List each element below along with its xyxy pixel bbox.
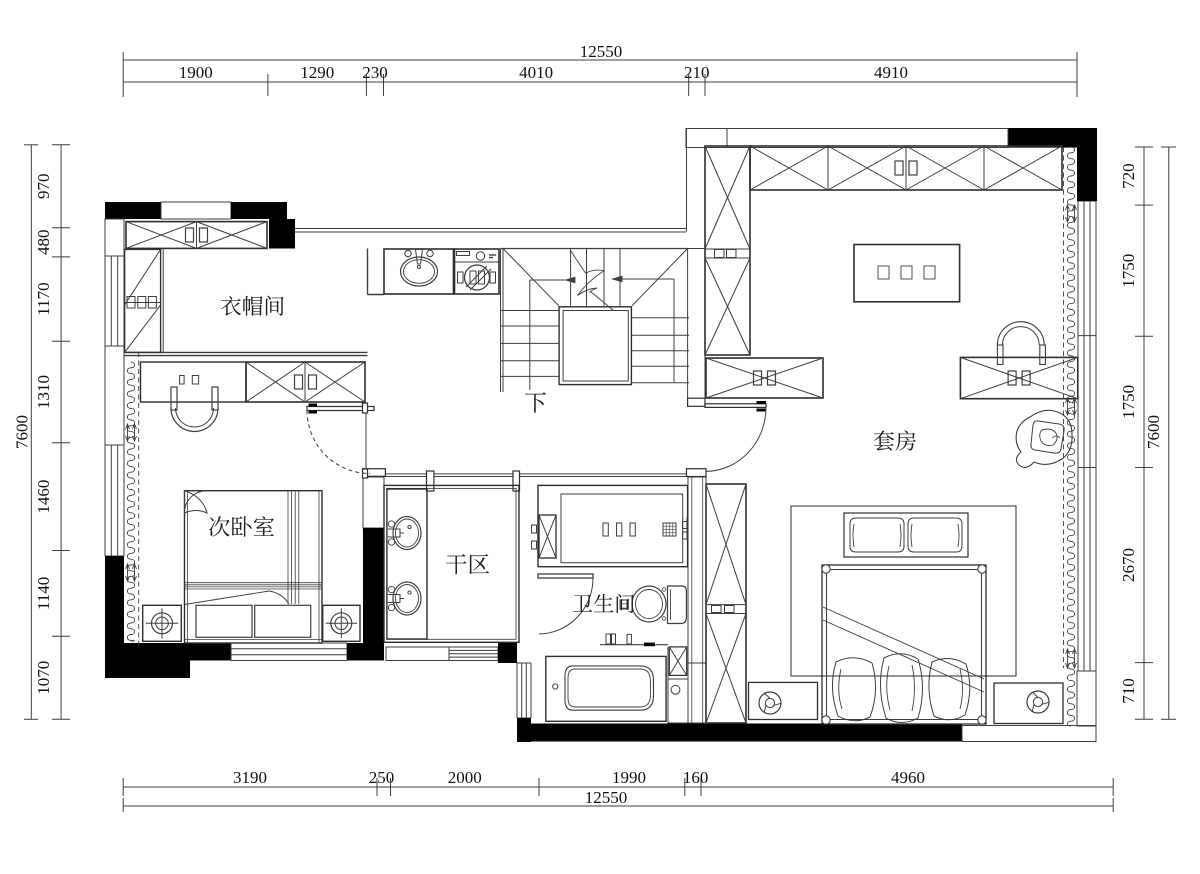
svg-text:2670: 2670	[1119, 548, 1138, 582]
svg-text:1750: 1750	[1119, 254, 1138, 288]
svg-text:4960: 4960	[891, 768, 925, 787]
svg-text:250: 250	[369, 768, 395, 787]
svg-text:2000: 2000	[448, 768, 482, 787]
svg-text:1310: 1310	[34, 375, 53, 409]
svg-text:1900: 1900	[179, 63, 213, 82]
svg-text:12550: 12550	[585, 788, 628, 807]
svg-text:710: 710	[1119, 678, 1138, 704]
svg-text:230: 230	[362, 63, 388, 82]
svg-text:1070: 1070	[34, 661, 53, 695]
svg-text:1170: 1170	[34, 282, 53, 315]
svg-text:4010: 4010	[519, 63, 553, 82]
svg-text:1290: 1290	[300, 63, 334, 82]
svg-text:970: 970	[34, 174, 53, 200]
svg-text:3190: 3190	[233, 768, 267, 787]
svg-text:720: 720	[1119, 163, 1138, 189]
svg-text:160: 160	[683, 768, 709, 787]
svg-text:210: 210	[684, 63, 710, 82]
svg-text:4910: 4910	[874, 63, 908, 82]
svg-text:1990: 1990	[612, 768, 646, 787]
svg-text:1460: 1460	[34, 480, 53, 514]
svg-text:480: 480	[34, 230, 53, 256]
svg-text:1750: 1750	[1119, 385, 1138, 419]
svg-text:1140: 1140	[34, 577, 53, 610]
svg-text:12550: 12550	[580, 42, 623, 61]
svg-text:7600: 7600	[13, 415, 32, 449]
svg-text:7600: 7600	[1144, 415, 1163, 449]
